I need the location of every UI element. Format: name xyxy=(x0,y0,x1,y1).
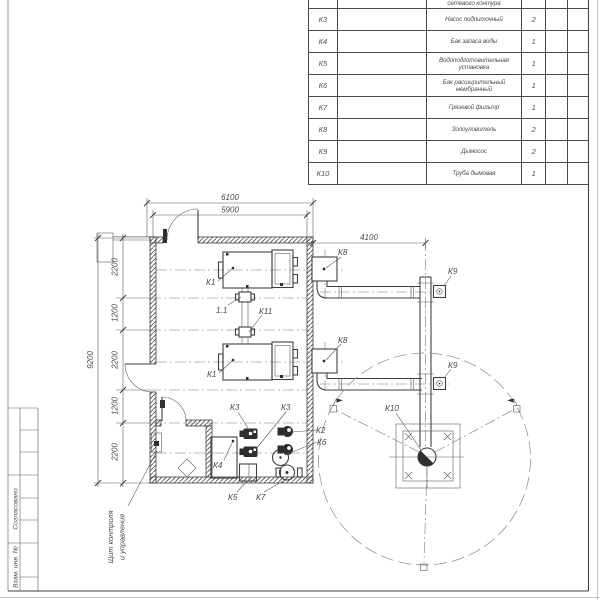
panel-callout: Щит контроля и управления xyxy=(106,510,127,563)
guy-wires xyxy=(334,409,515,562)
flue-duct-top xyxy=(317,281,420,298)
makeup-pump-k3-a xyxy=(240,429,258,440)
spec-extra2 xyxy=(568,31,589,52)
spec-designation xyxy=(338,141,427,162)
spec-extra1 xyxy=(546,53,568,74)
boiler-1 xyxy=(219,250,298,288)
spec-name: Труба дымовая xyxy=(427,163,523,184)
table-row: К5 Водоподготовительная установка 1 xyxy=(309,53,589,75)
spec-name: Насос подпиточный xyxy=(427,9,523,30)
dim-6100: 6100 xyxy=(221,193,239,202)
label-k5: К5 xyxy=(228,493,238,502)
spec-qty: 1 xyxy=(522,163,546,184)
smoke-exhauster-top xyxy=(434,286,446,298)
spec-qty: 1 xyxy=(522,75,546,96)
spec-extra2 xyxy=(568,75,589,96)
dim-4100: 4100 xyxy=(360,233,378,242)
table-row: К8 Золоуловитель 2 xyxy=(309,119,589,141)
label-k3-right: К3 xyxy=(281,403,291,412)
dim-chain-2: 1200 xyxy=(111,304,120,322)
dim-9200: 9200 xyxy=(86,351,95,369)
spec-pos: К4 xyxy=(309,31,338,52)
panel-callout-line1: Щит контроля xyxy=(106,510,115,563)
ash-collector-top xyxy=(312,257,337,281)
label-k4: К4 xyxy=(213,461,223,470)
spec-qty: 2 xyxy=(522,141,546,162)
spec-extra1 xyxy=(546,141,568,162)
table-row: К7 Грязевой фильтр 1 xyxy=(309,97,589,119)
spec-designation xyxy=(338,75,427,96)
spec-name: Бак запаса воды xyxy=(427,31,523,52)
panel-callout-line2: и управления xyxy=(118,514,127,560)
spec-qty: 1 xyxy=(522,53,546,74)
label-damper-11: 1.1 xyxy=(216,306,227,315)
dim-chain-1: 2200 xyxy=(111,258,120,277)
spec-extra1 xyxy=(546,0,568,8)
smoke-exhauster-bottom xyxy=(434,378,446,390)
spec-extra2 xyxy=(568,97,589,118)
guy-anchor-right xyxy=(507,399,520,413)
label-k8-top: К8 xyxy=(338,248,348,257)
makeup-pump-k3-b xyxy=(240,447,258,458)
label-k1-top: К1 xyxy=(206,278,215,287)
dim-chain-5: 2200 xyxy=(111,443,120,462)
spec-pos: К9 xyxy=(309,141,338,162)
spec-name: сетевого контура xyxy=(427,0,523,8)
spec-qty: 2 xyxy=(522,119,546,140)
spec-extra2 xyxy=(568,9,589,30)
label-k6: К6 xyxy=(317,438,327,447)
chimney xyxy=(389,424,464,488)
label-k3-left: К3 xyxy=(230,403,240,412)
spec-name: Золоуловитель xyxy=(427,119,523,140)
dim-chain-4: 1200 xyxy=(111,397,120,415)
label-k9-top: К9 xyxy=(448,267,458,276)
spec-extra1 xyxy=(546,163,568,184)
dim-5900: 5900 xyxy=(221,206,239,215)
table-row: К9 Дымосос 2 xyxy=(309,141,589,163)
water-tank-k4 xyxy=(211,437,237,478)
table-row: К4 Бак запаса воды 1 xyxy=(309,31,589,53)
spec-extra2 xyxy=(568,163,589,184)
spec-pos: К3 xyxy=(309,9,338,30)
spec-designation xyxy=(338,53,427,74)
spec-designation xyxy=(338,163,427,184)
table-row: К6 Бак расширительный мембранный 1 xyxy=(309,75,589,97)
table-row: К2 сетевого контура 2 xyxy=(309,0,589,9)
door-partition xyxy=(160,397,186,421)
spec-qty: 1 xyxy=(522,31,546,52)
spec-pos: К2 xyxy=(309,0,338,8)
dim-chain-3: 2200 xyxy=(111,351,120,370)
label-k11: К11 xyxy=(259,307,272,316)
spec-pos: К8 xyxy=(309,119,338,140)
door-top xyxy=(163,209,198,243)
network-pump-k2-a xyxy=(278,426,294,437)
spec-qty: 2 xyxy=(522,9,546,30)
label-k9-bottom: К9 xyxy=(448,361,458,370)
spec-designation xyxy=(338,97,427,118)
spec-extra1 xyxy=(546,31,568,52)
label-k7: К7 xyxy=(256,493,266,502)
specification-table: К2 сетевого контура 2 К3 Насос подпиточн… xyxy=(308,0,589,185)
spec-pos: К6 xyxy=(309,75,338,96)
title-block-strip: Согласовано Взам. инв. № xyxy=(8,408,38,591)
table-row: К10 Труба дымовая 1 xyxy=(309,163,589,185)
spec-pos: К10 xyxy=(309,163,338,184)
label-k10: К10 xyxy=(385,404,399,413)
spec-name: Дымосос xyxy=(427,141,523,162)
flue-duct-bottom xyxy=(317,373,422,390)
spec-name: Грязевой фильтр xyxy=(427,97,523,118)
table-row: К3 Насос подпиточный 2 xyxy=(309,9,589,31)
leader-lines xyxy=(128,257,451,506)
spec-extra1 xyxy=(546,75,568,96)
network-pump-k2-b xyxy=(278,444,294,455)
spec-extra2 xyxy=(568,119,589,140)
approve-label: Согласовано xyxy=(13,488,20,530)
spec-extra1 xyxy=(546,97,568,118)
boiler-2 xyxy=(219,342,298,380)
label-k8-bottom: К8 xyxy=(338,336,348,345)
spec-pos: К5 xyxy=(309,53,338,74)
floor-drain xyxy=(178,459,196,477)
spec-extra2 xyxy=(568,53,589,74)
spec-extra1 xyxy=(546,9,568,30)
spec-name: Бак расширительный мембранный xyxy=(427,75,523,96)
spec-designation xyxy=(338,0,427,8)
spec-qty: 2 xyxy=(522,0,546,8)
spec-name: Водоподготовительная установка xyxy=(427,53,523,74)
inv-label: Взам. инв. № xyxy=(13,546,20,588)
spec-pos: К7 xyxy=(309,97,338,118)
label-k1-bottom: К1 xyxy=(207,370,216,379)
spec-extra2 xyxy=(568,0,589,8)
spec-extra1 xyxy=(546,119,568,140)
spec-designation xyxy=(338,31,427,52)
door-left xyxy=(125,364,152,392)
spec-qty: 1 xyxy=(522,97,546,118)
label-k2: К2 xyxy=(316,426,326,435)
guy-anchor-left xyxy=(330,399,343,413)
spec-designation xyxy=(338,119,427,140)
drawing-sheet: Согласовано Взам. инв. № 6100 5900 4100 xyxy=(0,0,600,600)
flue-dampers xyxy=(236,288,255,344)
spec-extra2 xyxy=(568,141,589,162)
spec-designation xyxy=(338,9,427,30)
